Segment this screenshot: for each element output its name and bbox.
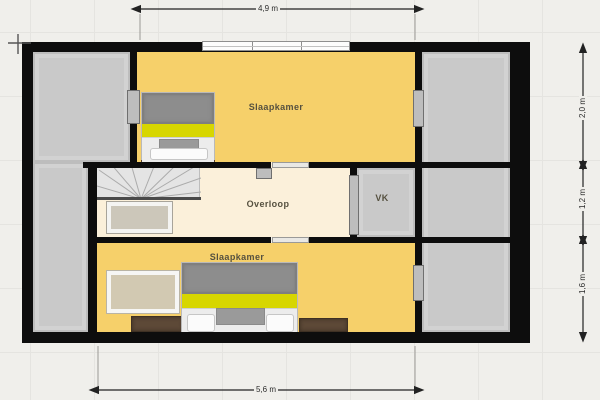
label-closet-vk: VK [375, 193, 388, 203]
storage-zone-right[interactable] [422, 52, 510, 332]
dimension-right-upper: 2,0 m [579, 96, 587, 120]
dimension-bottom-width: 5,6 m [254, 386, 278, 394]
door-leaf-landing[interactable] [256, 168, 272, 179]
bed-bottom-inset [216, 308, 265, 325]
storage-zone-top-left[interactable] [33, 52, 130, 162]
bed-bottom[interactable] [181, 262, 298, 333]
wall-h-upper-right [309, 162, 510, 168]
dimension-right-middle: 1,2 m [579, 187, 587, 211]
wall-outer-left [22, 42, 33, 343]
window-sill-line [203, 46, 349, 47]
wall-h-upper-left [83, 162, 271, 168]
dimension-top-width: 4,9 m [256, 5, 280, 13]
bed-top-accent-stripe [142, 124, 214, 137]
bed-bottom-duvet [182, 263, 297, 294]
door-bedroom-bottom-right-storage[interactable] [413, 265, 424, 301]
dimension-right-lower: 1,6 m [579, 272, 587, 296]
landing-cabinet[interactable] [107, 202, 172, 233]
label-bedroom-top: Slaapkamer [249, 102, 304, 112]
label-bedroom-bottom: Slaapkamer [210, 252, 265, 262]
dresser-left[interactable] [131, 316, 184, 332]
door-bedroom-top-right-storage[interactable] [413, 90, 424, 127]
wall-h-lower-left [88, 237, 271, 243]
bed-top-duvet [142, 93, 214, 124]
door-bedroom-top-left-storage[interactable] [127, 90, 140, 124]
door-bedroom-top-opening[interactable] [272, 162, 309, 168]
rug[interactable] [107, 271, 179, 313]
bed-bottom-pillow-right [266, 314, 294, 332]
bed-bottom-accent-stripe [182, 294, 297, 308]
window-top[interactable] [202, 41, 350, 51]
bed-top[interactable] [141, 92, 215, 160]
label-landing: Overloop [247, 199, 290, 209]
bed-bottom-pillow-left [187, 314, 215, 332]
floorplan-canvas: Slaapkamer Overloop VK Slaapkamer 4,9 m … [0, 0, 600, 400]
door-bedroom-bottom-opening[interactable] [272, 237, 309, 243]
wall-h-lower-right [309, 237, 510, 243]
bed-top-pillow [150, 148, 208, 160]
door-closet-vk[interactable] [349, 175, 359, 235]
storage-zone-bottom-left[interactable] [33, 162, 88, 332]
wall-outer-bottom [22, 332, 530, 343]
wall-landing-left [88, 162, 97, 332]
stair-edge [97, 197, 201, 200]
wall-outer-right [510, 42, 530, 343]
nightstand-right[interactable] [299, 318, 348, 332]
stair-treads [97, 164, 201, 200]
staircase[interactable] [96, 163, 200, 199]
